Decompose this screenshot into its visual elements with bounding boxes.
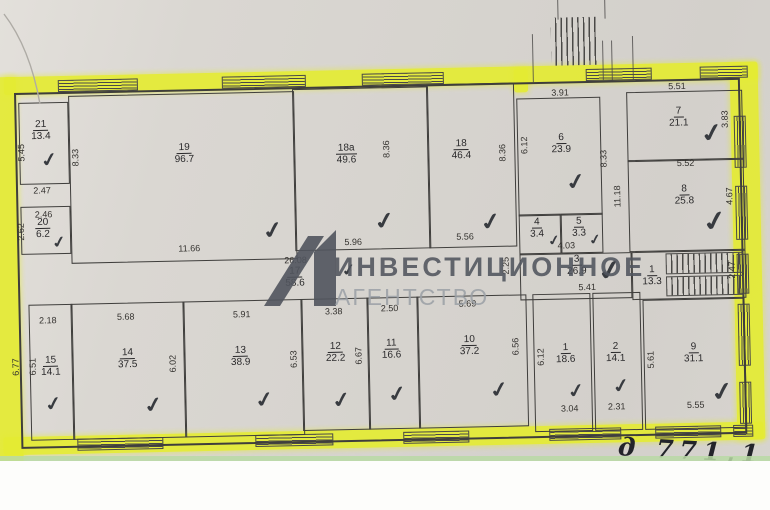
room-number: 13 [233,345,248,357]
room-number: 5 [574,216,584,228]
room-number: 7 [674,105,684,117]
dimension-label: 2.47 [727,261,737,279]
dimension-label: 5.45 [16,144,26,162]
room-number: 10 [462,334,477,346]
room-label: 1996.7 [174,142,194,165]
extension-line [611,40,613,80]
room-number: 1 [561,342,571,354]
dimension-label: 3.91 [551,87,569,97]
room-label: 721.1 [669,105,689,128]
room-area: 13.4 [31,131,51,142]
room-label: 1514.1 [41,355,61,378]
watermark-line1: ИНВЕСТИЦИОННОЕ [334,252,645,283]
room-area: 49.6 [337,154,357,165]
room-number: 14 [120,347,135,359]
room-area: 37.5 [118,359,138,370]
room-number: 21 [33,119,48,131]
dimension-label: 8.36 [497,144,507,162]
room-label: 1437.5 [118,347,138,370]
room-area: 22.2 [326,353,346,364]
room-number: 8 [679,183,689,195]
room-label: 1037.2 [459,334,479,357]
room-area: 3.4 [530,228,544,239]
dimension-label: 6.51 [28,358,38,376]
dimension-label: 8.33 [70,149,80,167]
room-label: 1338.9 [231,345,251,368]
room-number: 9 [689,341,699,353]
dimension-label: 3.04 [561,403,579,413]
room-label: 206.2 [35,217,51,240]
room-area: 37.2 [460,346,480,357]
room-label: 623.9 [551,132,571,155]
dimension-label: 5.52 [677,158,695,168]
room-area: 18.6 [556,354,576,365]
room-18 [426,83,517,249]
room-area: 14.1 [606,353,626,364]
room-number: 18 [453,138,468,150]
dimension-label: 11.66 [178,243,200,253]
scan-white-margin [0,461,770,510]
room-area: 16.6 [382,349,402,360]
dimension-label: 5.56 [456,231,474,241]
room-area: 14.1 [41,367,61,378]
dimension-label: 6.02 [168,355,178,373]
dimension-label: 2.47 [33,185,51,195]
room-13 [182,299,305,437]
dimension-label: 5.41 [578,282,596,292]
room-area: 3.3 [572,228,586,239]
dimension-label: 6.12 [519,136,529,154]
dimension-label: 6.77 [11,358,21,376]
room-label: 214.1 [606,341,626,364]
dimension-label: 2.18 [39,315,57,325]
dimension-label: 6.67 [353,347,363,365]
room-label: 43.4 [530,216,544,239]
dimension-label: 4.67 [724,187,734,205]
extension-line [602,41,604,81]
room-label: 118.6 [556,342,576,365]
dimension-label: 6.56 [510,338,520,356]
room-label: 2113.4 [31,119,51,142]
dimension-label: 2.62 [16,223,26,241]
room-number: 2 [611,341,621,353]
room-area: 25.8 [675,195,695,206]
room-label: 1846.4 [451,138,471,161]
room-number: 11 [384,338,399,350]
dimension-label: 2.31 [608,401,626,411]
room-number: 12 [328,341,343,353]
window-symbol [700,66,748,79]
room-number: 19 [177,142,192,154]
room-area: 96.7 [175,154,195,165]
room-label: 18a49.6 [336,142,357,165]
extension-line [632,36,634,80]
extension-line [532,34,534,82]
dimension-label: 8.33 [598,150,608,168]
room-area: 6.2 [36,229,50,240]
room-10 [416,294,529,428]
room-11 [366,297,421,430]
scanned-floorplan-photo: 2113.4✓206.2✓1996.7✓18a49.6✓1846.4✓623.9… [0,0,770,510]
room-label: 931.1 [684,341,704,364]
room-number: 4 [532,216,542,228]
extension-line [604,0,606,19]
dimension-label: 5.55 [687,400,705,410]
paper-fold-curve [0,0,80,110]
dimension-label: 5.68 [117,312,135,322]
dimension-label: 6.53 [288,350,298,368]
room-number: 1 [647,264,657,276]
dimension-label: 5.91 [233,309,251,319]
watermark-line2: АГЕНТСТВО [335,284,489,311]
room-area: 46.4 [452,150,472,161]
dimension-label: 5.61 [646,351,656,369]
external-stairs-hatch [551,17,598,66]
room-area: 38.9 [231,357,251,368]
room-number: 15 [43,355,58,367]
dimension-label: 2.46 [35,209,53,219]
room-label: 825.8 [674,183,694,206]
dimension-label: 5.51 [668,81,686,91]
room-number: 18a [336,142,357,154]
room-label: 53.3 [572,216,586,239]
room-area: 21.1 [669,117,689,128]
room-area: 31.1 [684,353,704,364]
dimension-label: 8.36 [381,140,391,158]
room-area: 23.9 [551,144,571,155]
dimension-label: 11.18 [612,185,622,207]
room-label: 1116.6 [381,337,401,360]
dimension-label: 6.12 [535,348,545,366]
room-label: 1222.2 [326,341,346,364]
room-number: 6 [556,132,566,144]
room-6 [516,97,602,217]
